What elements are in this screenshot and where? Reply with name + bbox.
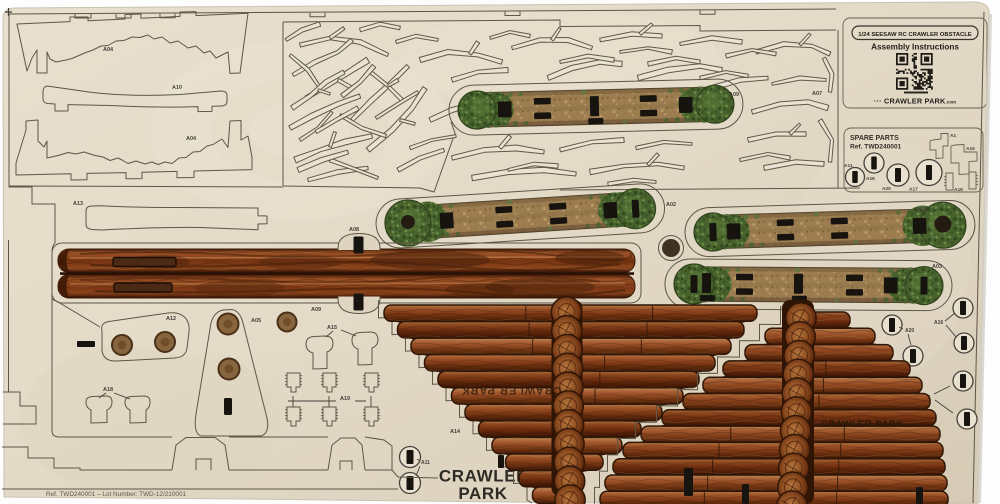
svg-text:A20: A20 [882, 186, 891, 192]
svg-text:A19: A19 [340, 396, 350, 402]
svg-text:A1: A1 [950, 133, 956, 139]
svg-text:CRAWLER PARK: CRAWLER PARK [460, 384, 561, 396]
svg-text:A15: A15 [966, 146, 975, 152]
svg-text:A11: A11 [421, 460, 430, 466]
svg-text:A04: A04 [103, 47, 114, 53]
svg-text:A07: A07 [812, 91, 822, 97]
svg-text:PARK: PARK [458, 484, 507, 503]
svg-text:A20: A20 [905, 328, 914, 334]
svg-text:A09: A09 [729, 92, 739, 98]
svg-text:A14: A14 [450, 429, 461, 435]
svg-text:··· CRAWLER PARK.com: ··· CRAWLER PARK.com [874, 97, 956, 106]
svg-text:A17: A17 [909, 187, 918, 193]
svg-text:A15: A15 [327, 325, 337, 331]
svg-text:A12: A12 [166, 316, 176, 322]
svg-text:A16: A16 [866, 176, 875, 182]
svg-text:A01: A01 [917, 207, 927, 213]
svg-text:Ref. TWD240001: Ref. TWD240001 [850, 144, 902, 151]
svg-text:Assembly Instructions: Assembly Instructions [871, 43, 959, 52]
svg-text:CRAWLER PARK.com: CRAWLER PARK.com [821, 419, 918, 430]
svg-text:Ref. TWD240001 – Lot Number:: Ref. TWD240001 – Lot Number: TWD-12/2100… [46, 491, 187, 498]
svg-text:A02: A02 [666, 202, 676, 208]
svg-text:A09: A09 [311, 307, 321, 313]
svg-text:A04: A04 [186, 136, 197, 142]
svg-text:A18: A18 [103, 387, 113, 393]
svg-text:A16: A16 [934, 320, 943, 326]
svg-text:A10: A10 [172, 85, 182, 91]
svg-text:A19: A19 [954, 187, 963, 193]
svg-text:A03: A03 [932, 264, 942, 270]
svg-text:1/24 SEESAW RC CRAWLER OBSTACL: 1/24 SEESAW RC CRAWLER OBSTACLE [858, 32, 972, 38]
svg-text:A11: A11 [844, 163, 853, 169]
svg-text:A13: A13 [73, 201, 83, 207]
svg-text:A08: A08 [349, 227, 359, 233]
svg-text:SPARE PARTS: SPARE PARTS [850, 135, 899, 142]
svg-text:A05: A05 [251, 318, 261, 324]
